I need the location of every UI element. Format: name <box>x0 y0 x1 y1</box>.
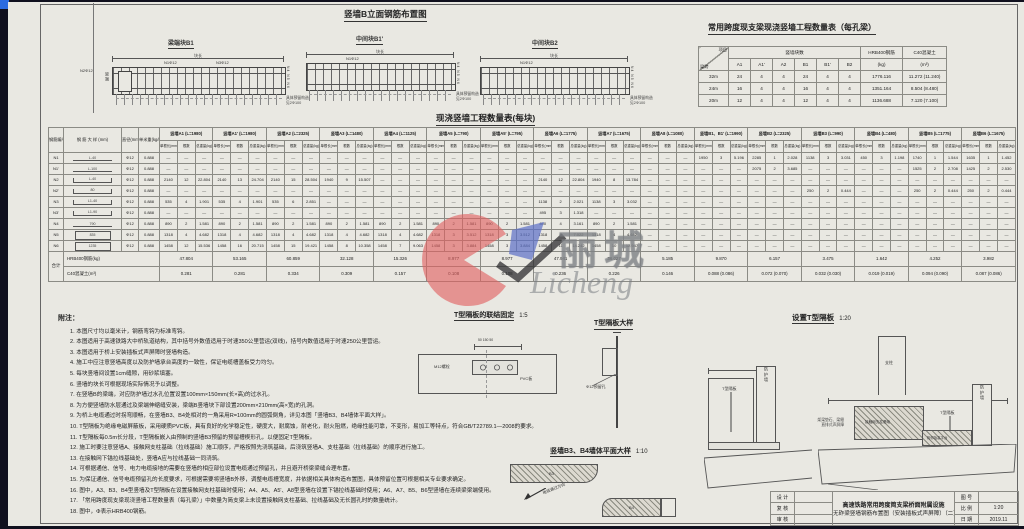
cell: 8.977 <box>427 252 480 267</box>
elevation-title: 竖墙B立面钢筋布置图 <box>344 8 427 22</box>
cell: — <box>570 186 588 197</box>
cell: — <box>766 219 784 230</box>
cell: 12 <box>552 175 570 186</box>
cell: 1.642 <box>855 252 908 267</box>
cell: — <box>855 241 873 252</box>
cell: — <box>694 164 712 175</box>
elev1-ticks <box>116 94 282 105</box>
cell: 2 <box>177 219 195 230</box>
cell: 0.088 (0.086) <box>694 267 747 282</box>
cell: 8 <box>338 241 356 252</box>
cell: 0.072 (0.070) <box>748 267 801 282</box>
cell: Φ12 <box>122 219 139 230</box>
cell: — <box>534 164 552 175</box>
plan-scale: 1:10 <box>636 449 648 455</box>
cell: 2075 <box>748 164 766 175</box>
cell: 根数 <box>873 141 891 153</box>
cell: 14.242 <box>570 241 588 252</box>
cell: 4 <box>839 71 861 83</box>
cell: — <box>748 219 766 230</box>
cell: — <box>641 197 659 208</box>
elev1-grid <box>112 67 286 95</box>
cell: 890 <box>160 219 178 230</box>
cell: — <box>266 208 284 219</box>
cell: — <box>641 153 659 164</box>
cell <box>795 492 833 503</box>
cell: — <box>819 241 837 252</box>
cell: — <box>641 208 659 219</box>
cell: 单根长(mm) <box>962 141 980 153</box>
cell: — <box>712 241 730 252</box>
cell: 竖墙B5 (L=1775) <box>908 128 961 141</box>
cell: — <box>748 175 766 186</box>
cell: 3.884 <box>516 241 534 252</box>
cell: 高速铁路常用跨度简支梁桥面附属设施无砟梁竖墙钢筋布置图（安装插板式声屏障）（二） <box>833 492 955 526</box>
cell: 890 <box>266 219 284 230</box>
cell: 0.146 <box>641 267 694 282</box>
cell: 根数 <box>177 141 195 153</box>
cell: 8.504 (8.480) <box>903 83 947 95</box>
cell: 1458 <box>480 241 498 252</box>
cell: — <box>213 153 231 164</box>
cell: C40混凝土 <box>903 47 947 59</box>
cell: — <box>213 164 231 175</box>
cell: — <box>587 208 605 219</box>
cell: — <box>338 208 356 219</box>
lsec-wall-label: 防护墙 <box>763 367 769 383</box>
cell: — <box>694 230 712 241</box>
cell: 28.504 <box>302 175 320 186</box>
lsec-wall: 防护墙 <box>756 366 776 446</box>
cell: 0.281 <box>213 267 266 282</box>
cell: 1318 <box>266 230 284 241</box>
cell: — <box>463 208 481 219</box>
cell: B2 <box>839 59 861 71</box>
cell: N1' <box>49 164 64 175</box>
cell: 0.108 <box>427 267 480 282</box>
cell: (kg) <box>861 59 903 71</box>
girder-outline-left <box>704 448 814 490</box>
cell: 0.444 <box>997 186 1015 197</box>
cell: 根数 <box>605 141 623 153</box>
cell: — <box>463 197 481 208</box>
cell: — <box>712 164 730 175</box>
cell: — <box>908 208 926 219</box>
cell: — <box>855 219 873 230</box>
cell: 1.318 <box>570 208 588 219</box>
cell: 890 <box>373 219 391 230</box>
cell: 535 <box>266 197 284 208</box>
cell: — <box>249 186 267 197</box>
cell: 钢 筋 大 样 (mm) <box>64 128 122 153</box>
cell: — <box>783 241 801 252</box>
cell: — <box>160 208 178 219</box>
cell: — <box>801 230 819 241</box>
cell: — <box>213 208 231 219</box>
cell: — <box>605 208 623 219</box>
cell: — <box>962 175 980 186</box>
cell: — <box>730 208 748 219</box>
cell: — <box>980 219 998 230</box>
cell: 3 <box>498 241 516 252</box>
rebar-label: N1Φ12 <box>520 60 533 65</box>
cell: 0.888 <box>139 241 160 252</box>
cell: 根数 <box>445 141 463 153</box>
cell: — <box>587 164 605 175</box>
cell: — <box>819 208 837 219</box>
cell: 4.682 <box>195 230 213 241</box>
cell: 单根长(mm) <box>534 141 552 153</box>
cell: 3.512 <box>516 230 534 241</box>
cell: 1.581 <box>302 219 320 230</box>
cell: 250 <box>962 186 980 197</box>
cell: 1458 <box>160 241 178 252</box>
cell: — <box>659 197 677 208</box>
cell: 15 <box>284 241 302 252</box>
cell: — <box>302 186 320 197</box>
cell: — <box>837 197 855 208</box>
cell: — <box>195 208 213 219</box>
cell: — <box>320 186 338 197</box>
cell: — <box>855 164 873 175</box>
cell: — <box>926 208 944 219</box>
cell: 1458 <box>320 241 338 252</box>
cell: 复 核 <box>771 503 795 514</box>
cell: 0.226 <box>587 267 640 282</box>
rsec-left-note: 架梁垫石、梁缝直排式声屏障 <box>804 418 844 427</box>
cell: 2 <box>980 164 998 175</box>
cell: 根数 <box>338 141 356 153</box>
cell: — <box>463 175 481 186</box>
cell: — <box>677 153 695 164</box>
cell: — <box>552 153 570 164</box>
cell: — <box>177 208 195 219</box>
elev1-endblock <box>118 71 132 92</box>
cell: — <box>801 164 819 175</box>
cell: 32m <box>699 71 729 83</box>
cell: — <box>641 175 659 186</box>
cell: — <box>890 208 908 219</box>
cell: — <box>944 175 962 186</box>
cell: — <box>997 219 1015 230</box>
cell: — <box>873 230 891 241</box>
cell: 2.530 <box>997 164 1015 175</box>
rebar-label: N3Φ12 <box>216 60 229 65</box>
cell: — <box>623 164 641 175</box>
cell: — <box>320 164 338 175</box>
cell: 单根长(mm) <box>748 141 766 153</box>
cell: — <box>730 230 748 241</box>
cell: 钢筋编号 <box>49 128 64 153</box>
cell: — <box>890 175 908 186</box>
cell: 890 <box>427 219 445 230</box>
cell: 3 <box>819 153 837 164</box>
cell: — <box>177 186 195 197</box>
cell: 1.581 <box>249 219 267 230</box>
cell: — <box>694 175 712 186</box>
cell: — <box>890 241 908 252</box>
right-labels: N4 N5 N6 <box>630 66 634 92</box>
cell: 竖墙A8 (L=1080) <box>641 128 694 141</box>
cell: — <box>926 219 944 230</box>
cell: — <box>712 230 730 241</box>
cell: 1.581 <box>356 219 374 230</box>
rsec-wall-label: 防护墙 <box>979 385 985 401</box>
cell: — <box>730 241 748 252</box>
cell: 0.888 <box>139 153 160 164</box>
cell: — <box>748 208 766 219</box>
cell: — <box>231 186 249 197</box>
cell: 890 <box>320 219 338 230</box>
cell: — <box>677 208 695 219</box>
cell: — <box>730 175 748 186</box>
cell: 0.444 <box>944 186 962 197</box>
cell: 合计 <box>49 252 64 282</box>
cell: — <box>534 186 552 197</box>
cell: 4 <box>177 230 195 241</box>
cell: 总重量(kg) <box>890 141 908 153</box>
cell: — <box>890 230 908 241</box>
elev3-note: 具体预留构造见2Φ100 <box>630 96 653 105</box>
cell: — <box>641 230 659 241</box>
cell: — <box>480 175 498 186</box>
cell: — <box>855 186 873 197</box>
cell: 2 <box>819 186 837 197</box>
cell: 3 <box>552 208 570 219</box>
cell: — <box>391 164 409 175</box>
cell: — <box>997 197 1015 208</box>
cell: N3 <box>49 197 64 208</box>
cell: — <box>730 186 748 197</box>
cell: — <box>409 186 427 197</box>
cell: L-40 <box>64 153 122 164</box>
plan-shape-b4: B4 <box>602 498 662 517</box>
cell: — <box>641 186 659 197</box>
cell: 根数 <box>498 141 516 153</box>
cell: 2 <box>498 219 516 230</box>
cell: 根数 <box>766 141 784 153</box>
cell: — <box>801 241 819 252</box>
cell: 15.507 <box>356 175 374 186</box>
cell: — <box>837 164 855 175</box>
cell: 单根长(mm) <box>694 141 712 153</box>
cell: 13 <box>231 175 249 186</box>
elev2-dim: 块长 <box>306 54 454 55</box>
cell: — <box>659 230 677 241</box>
cell: 4 <box>391 230 409 241</box>
cell: 1.901 <box>249 197 267 208</box>
cell: 项目梁跨 <box>699 47 729 71</box>
cell: 24 <box>729 71 751 83</box>
cell: 22.804 <box>195 175 213 186</box>
cell: 1138 <box>587 197 605 208</box>
cell: — <box>160 153 178 164</box>
cell: — <box>677 230 695 241</box>
cell: 0.888 <box>139 230 160 241</box>
cell: — <box>926 230 944 241</box>
b4-tag: B4 <box>629 505 634 510</box>
cell: 竖墙A3 (L=1480) <box>320 128 373 141</box>
cell: N5 <box>49 230 64 241</box>
cell: 13.784 <box>623 175 641 186</box>
cell: — <box>980 197 998 208</box>
fold-line <box>93 3 94 113</box>
cell: — <box>338 153 356 164</box>
elevation-diagram-2: 中间块B1' 块长 N1Φ12 N4 N5 N6 具体预留构造见2Φ100 <box>296 34 466 109</box>
cell: 250 <box>801 186 819 197</box>
cell: 4 <box>751 95 773 107</box>
cell: N3' <box>49 208 64 219</box>
cell: 24.704 <box>249 175 267 186</box>
cell: 2 <box>284 219 302 230</box>
cell: — <box>962 197 980 208</box>
cell: — <box>516 208 534 219</box>
cell: — <box>391 186 409 197</box>
cell: 2 <box>926 186 944 197</box>
cell: Φ12 <box>122 197 139 208</box>
cell: — <box>356 164 374 175</box>
cell: 2 <box>231 219 249 230</box>
cell: — <box>320 153 338 164</box>
title-block: 设 计高速铁路常用跨度简支梁桥面附属设施无砟梁竖墙钢筋布置图（安装插板式声屏障）… <box>770 491 1018 526</box>
cell: — <box>837 175 855 186</box>
cell: 3 <box>445 230 463 241</box>
cell: 4 <box>231 197 249 208</box>
cell: A1' <box>751 59 773 71</box>
post-label: 支柱 <box>885 360 893 366</box>
cell: A2 <box>773 59 795 71</box>
cell: — <box>659 153 677 164</box>
cell: 2 <box>605 219 623 230</box>
cell: 1.581 <box>463 219 481 230</box>
cell: — <box>748 197 766 208</box>
cell: — <box>873 208 891 219</box>
cell: — <box>980 241 998 252</box>
cell: 2 <box>766 164 784 175</box>
bolt-label: M12螺栓 <box>434 364 450 370</box>
cell: — <box>801 175 819 186</box>
cell: — <box>962 230 980 241</box>
cell: 1318 <box>427 230 445 241</box>
cell: 单根长(mm) <box>427 141 445 153</box>
cell: — <box>801 197 819 208</box>
cell: 总重量(kg) <box>997 141 1015 153</box>
cell: 单根长(mm) <box>587 141 605 153</box>
rsec-foundation: 接触网支柱基础 <box>854 406 924 440</box>
cell: — <box>249 164 267 175</box>
b3b4-plan-detail: 竖墙B3、B4墙体平面大样 1:10 B3 电缆通过方向 B4 <box>508 442 678 524</box>
cell: 竖墙块数 <box>729 47 861 59</box>
cell: — <box>498 197 516 208</box>
cell: 3.031 <box>837 153 855 164</box>
cell: — <box>926 197 944 208</box>
cell: B1' <box>817 59 839 71</box>
hole-leader <box>592 374 616 386</box>
cell: 4 <box>338 230 356 241</box>
cell: — <box>801 219 819 230</box>
cell: 1.198 <box>890 153 908 164</box>
cell: 2140 <box>266 175 284 186</box>
elev3-title: 中间块B2 <box>532 38 558 49</box>
cell: — <box>498 164 516 175</box>
cell: 日 期 <box>955 514 979 525</box>
cell: 535 <box>213 197 231 208</box>
right-labels: N4 N5 N6 <box>286 66 290 92</box>
cell: — <box>516 164 534 175</box>
cell: 2140 <box>160 175 178 186</box>
cell: 1458 <box>266 241 284 252</box>
plan-shape-b3: B3 <box>510 464 598 483</box>
cell: — <box>338 197 356 208</box>
cell: — <box>266 164 284 175</box>
cell: 1635 <box>962 153 980 164</box>
cell: 竖墙B6 (L=1675) <box>962 128 1016 141</box>
cell: 24m <box>699 83 729 95</box>
cell: — <box>980 230 998 241</box>
cell: 1318 <box>213 230 231 241</box>
cell: 4.682 <box>409 230 427 241</box>
cell: — <box>427 175 445 186</box>
cell: 根数 <box>659 141 677 153</box>
cell: — <box>463 164 481 175</box>
cell: — <box>445 153 463 164</box>
cell: — <box>730 197 748 208</box>
cell: N2 <box>49 175 64 186</box>
fixing-plate <box>472 360 518 375</box>
cell: — <box>926 241 944 252</box>
cell: 图 号 <box>955 492 979 503</box>
cell: — <box>427 153 445 164</box>
cell: — <box>766 230 784 241</box>
cell: — <box>837 241 855 252</box>
cell: 3 <box>445 241 463 252</box>
cell: — <box>409 164 427 175</box>
cell: 19.421 <box>302 241 320 252</box>
cell: — <box>980 208 998 219</box>
cell: 竖墙A1 (L=1980) <box>160 128 213 141</box>
cell: N1 <box>49 153 64 164</box>
cell: 1.581 <box>195 219 213 230</box>
cell: 5.196 <box>730 153 748 164</box>
cell: — <box>623 153 641 164</box>
cell: 3.032 <box>623 197 641 208</box>
cell: — <box>231 208 249 219</box>
cell: — <box>552 164 570 175</box>
cell: L-40 <box>64 175 122 186</box>
cell: — <box>855 197 873 208</box>
cell: 1138 <box>801 153 819 164</box>
cell: — <box>463 186 481 197</box>
cell: — <box>730 219 748 230</box>
cell: 53.165 <box>213 252 266 267</box>
cell: — <box>570 164 588 175</box>
cell: — <box>249 153 267 164</box>
cell: 0.334 <box>266 267 319 282</box>
cell <box>979 492 1019 503</box>
cell: 3 <box>873 153 891 164</box>
platform-label: 相邻抬高平台 <box>927 435 947 440</box>
cell: — <box>284 153 302 164</box>
cell: 535 <box>160 197 178 208</box>
cell: 8 <box>605 175 623 186</box>
cell: 1318 <box>480 230 498 241</box>
cell: — <box>659 175 677 186</box>
cell: — <box>284 164 302 175</box>
cell: 4.252 <box>908 252 961 267</box>
cell: — <box>873 186 891 197</box>
elev2-ticks <box>309 90 451 101</box>
cell: — <box>873 241 891 252</box>
